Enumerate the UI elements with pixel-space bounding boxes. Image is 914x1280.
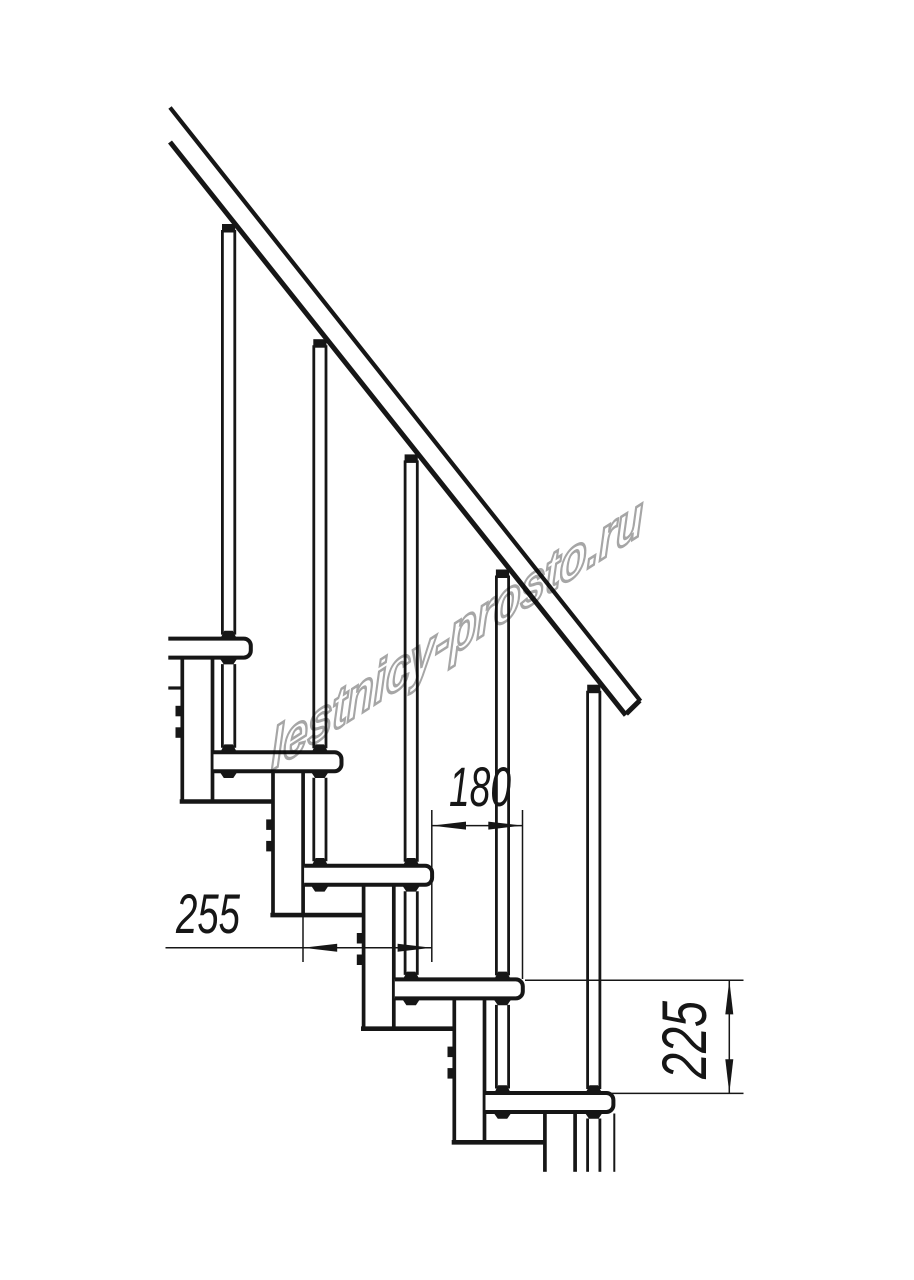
svg-text:225: 225	[650, 1000, 720, 1079]
svg-text:180: 180	[449, 755, 511, 818]
svg-text:255: 255	[175, 882, 240, 945]
